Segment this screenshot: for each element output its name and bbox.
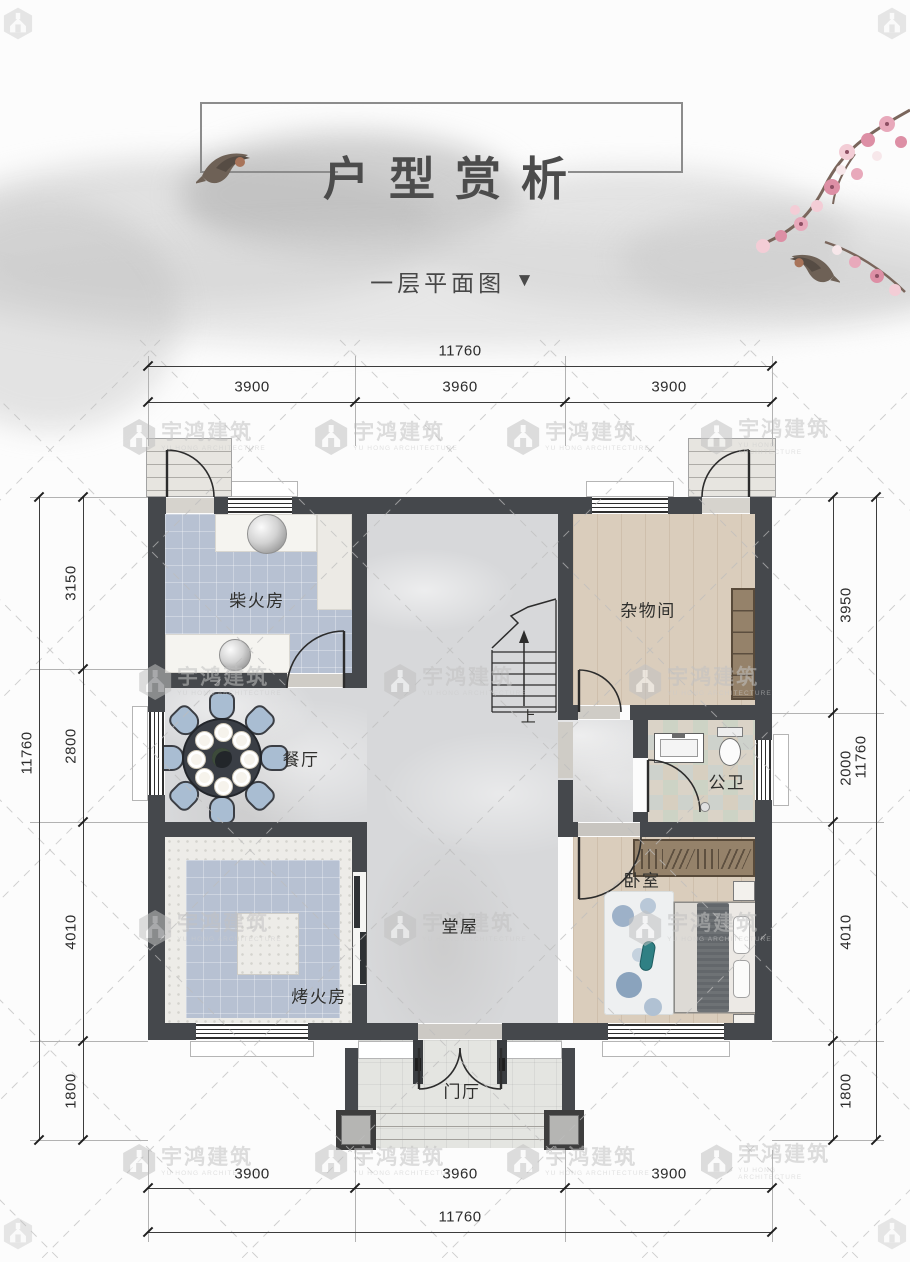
extension-line — [772, 1140, 884, 1141]
blossoms — [756, 116, 907, 296]
pilaster — [358, 1041, 415, 1059]
down-triangle-icon: ▼ — [515, 270, 534, 292]
dim-bottom-seg-2: 3960 — [442, 1166, 477, 1183]
window-sill — [222, 481, 298, 497]
nightstand — [733, 881, 755, 901]
yuhong-logo-icon — [700, 1143, 733, 1181]
window — [196, 1024, 308, 1039]
yuhong-logo-icon — [3, 7, 33, 46]
extension-line — [30, 822, 148, 823]
page-title: 户型赏析 — [323, 143, 587, 209]
wall-segment — [668, 497, 702, 514]
extension-line — [30, 497, 148, 498]
yuhong-logo-icon — [122, 1143, 156, 1181]
wall-segment — [633, 720, 648, 758]
plate — [214, 777, 233, 796]
wall-segment — [755, 497, 772, 740]
dim-left-seg-1: 3150 — [63, 565, 80, 600]
wok-stove — [247, 514, 287, 554]
bed-sheet — [675, 903, 697, 1012]
watermark: 宇鸿建筑YU HONG ARCHITECTURE — [700, 1143, 840, 1181]
yuhong-logo-icon — [3, 1217, 33, 1256]
porch-wall — [345, 1048, 358, 1111]
dim-top-seg-2: 3960 — [442, 379, 477, 396]
storage-cabinet — [731, 588, 755, 700]
dim-left-seg-4: 1800 — [63, 1073, 80, 1108]
wall-segment — [640, 822, 772, 837]
rug-floral — [640, 898, 656, 914]
hanging-clothes — [697, 849, 719, 869]
wall-segment — [148, 795, 165, 1040]
plate — [214, 723, 233, 742]
plate — [195, 731, 214, 750]
door-hinge — [499, 1058, 505, 1071]
porch-step-line — [352, 1126, 568, 1127]
pillow — [733, 960, 750, 998]
bed-blanket — [697, 903, 729, 1012]
door-threshold — [287, 674, 345, 687]
yuhong-logo-icon — [506, 1143, 540, 1181]
dim-right-seg-3: 4010 — [838, 914, 855, 949]
toilet-bowl — [719, 738, 741, 766]
rug-floral — [644, 998, 662, 1016]
dim-left-seg-3: 4010 — [63, 914, 80, 949]
door-hinge — [415, 1058, 421, 1071]
sink-basin — [660, 739, 698, 757]
dim-right-overall: 11760 — [853, 735, 870, 778]
wall-segment — [148, 497, 165, 712]
title-frame — [200, 102, 683, 104]
porch-column-core — [549, 1115, 579, 1145]
yuhong-logo-icon — [506, 418, 540, 456]
dimension-line — [148, 1232, 772, 1233]
table-centerpiece — [212, 748, 232, 768]
dim-top-seg-1: 3900 — [234, 379, 269, 396]
extension-line — [355, 1150, 356, 1242]
dining-chair — [209, 692, 235, 720]
dim-bottom-seg-1: 3900 — [234, 1166, 269, 1183]
wall-segment — [633, 812, 648, 822]
wall-segment — [292, 497, 592, 514]
dim-top-seg-3: 3900 — [651, 379, 686, 396]
extension-line — [30, 1140, 148, 1141]
dim-right-seg-1: 3950 — [838, 587, 855, 622]
wok-stove — [219, 639, 251, 671]
watermark: 宇鸿建筑YU HONG ARCHITECTURE — [506, 418, 650, 456]
dim-bottom-seg-3: 3900 — [651, 1166, 686, 1183]
yuhong-logo-icon — [314, 418, 348, 456]
rug-floral — [616, 972, 642, 998]
wall-segment — [165, 822, 352, 837]
extension-line — [30, 1041, 148, 1042]
wall-segment — [558, 705, 578, 720]
window-sill — [132, 706, 148, 801]
door-threshold — [578, 823, 640, 836]
dim-right-seg-4: 1800 — [838, 1073, 855, 1108]
wall-segment — [558, 497, 573, 720]
room-label-menting: 门厅 — [444, 1078, 481, 1103]
porch-column-core — [341, 1115, 371, 1145]
extension-line — [30, 669, 148, 670]
extension-line — [772, 713, 884, 714]
window-sill — [586, 481, 674, 497]
dimension-line — [148, 402, 772, 403]
dimension-line — [39, 497, 40, 1140]
room-label-woshi: 卧室 — [624, 867, 661, 892]
floor-drain — [700, 802, 710, 812]
dim-left-seg-2: 2800 — [63, 728, 80, 763]
wall-segment — [352, 497, 367, 688]
pillow — [733, 916, 750, 954]
dim-top-overall: 11760 — [438, 343, 481, 360]
door-threshold — [418, 1024, 502, 1039]
plum-blossom-branch — [705, 92, 910, 307]
room-label-chaihuofang: 柴火房 — [229, 587, 285, 612]
door-threshold — [702, 498, 750, 513]
page-subtitle: 一层平面图 ▼ — [370, 264, 534, 298]
entry-steps — [688, 438, 776, 497]
room-label-canting: 餐厅 — [283, 746, 320, 771]
porch-step-line — [352, 1113, 568, 1114]
porch-wall — [562, 1048, 575, 1111]
wall-segment — [352, 822, 367, 872]
wall-segment — [165, 673, 287, 688]
fire-pit-platform — [238, 914, 298, 974]
porch-step-line — [352, 1139, 568, 1140]
toilet — [717, 727, 743, 737]
kitchen-counter — [317, 514, 352, 610]
floor-plan-poster: 户型赏析 一层平面图 ▼ — [0, 0, 910, 1262]
room-floor-hall — [367, 514, 558, 1023]
pilaster — [505, 1041, 562, 1059]
stair-up-label: 上 — [521, 706, 538, 727]
plate — [187, 750, 206, 769]
window-sill — [190, 1041, 314, 1057]
watermark: 宇鸿建筑YU HONG ARCHITECTURE — [314, 418, 458, 456]
door-threshold — [578, 706, 620, 719]
window-sill — [773, 734, 789, 806]
extension-line — [772, 822, 884, 823]
plate — [232, 731, 251, 750]
room-label-kaohuofang: 烤火房 — [291, 983, 347, 1008]
bird-icon — [196, 146, 258, 196]
entry-steps — [146, 438, 232, 497]
plate — [240, 750, 259, 769]
title-frame — [681, 102, 683, 172]
extension-line — [772, 1041, 884, 1042]
window — [608, 1024, 724, 1039]
wall-segment — [214, 497, 228, 514]
dimension-line — [876, 497, 877, 1140]
dimension-line — [148, 1188, 772, 1189]
window — [592, 498, 668, 513]
door-threshold — [166, 498, 214, 513]
window-sill — [602, 1041, 730, 1057]
dim-left-overall: 11760 — [19, 731, 36, 774]
rug-floral — [612, 905, 634, 927]
yuhong-logo-icon — [877, 7, 907, 46]
faucet-icon — [672, 733, 685, 738]
sliding-door-panel — [360, 932, 366, 984]
room-label-gongwei: 公卫 — [709, 769, 746, 794]
wall-segment — [345, 673, 352, 688]
wall-segment — [502, 1023, 608, 1040]
sliding-door-panel — [354, 876, 360, 928]
subtitle-text: 一层平面图 — [370, 264, 505, 298]
passage-threshold — [558, 722, 573, 778]
room-label-zawujian: 杂物间 — [620, 597, 676, 622]
extension-line — [772, 497, 884, 498]
window — [149, 712, 164, 795]
wall-segment — [630, 705, 772, 720]
dimension-line — [148, 366, 772, 367]
window — [228, 498, 292, 513]
extension-line — [565, 1150, 566, 1242]
plate — [232, 768, 251, 787]
room-label-tangwu: 堂屋 — [442, 913, 479, 938]
window — [756, 740, 771, 800]
wall-segment — [352, 985, 367, 1040]
dim-bottom-overall: 11760 — [438, 1209, 481, 1226]
plate — [195, 768, 214, 787]
wall-segment — [558, 822, 578, 837]
yuhong-logo-icon — [877, 1217, 907, 1256]
dining-chair — [209, 796, 235, 824]
